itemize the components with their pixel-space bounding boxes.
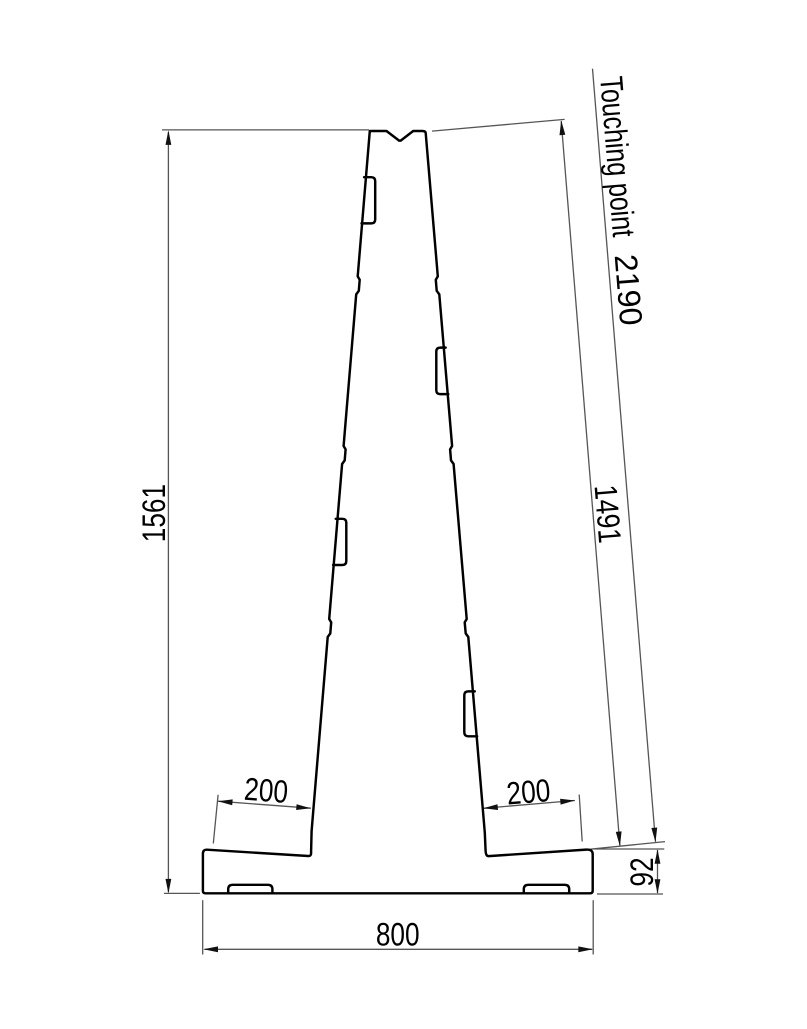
svg-text:200: 200	[505, 774, 552, 813]
svg-text:2190: 2190	[608, 253, 650, 327]
svg-text:1561: 1561	[138, 484, 173, 542]
svg-text:1491: 1491	[587, 483, 627, 544]
svg-text:200: 200	[243, 772, 289, 810]
svg-text:92: 92	[626, 857, 661, 886]
svg-text:800: 800	[376, 918, 420, 953]
